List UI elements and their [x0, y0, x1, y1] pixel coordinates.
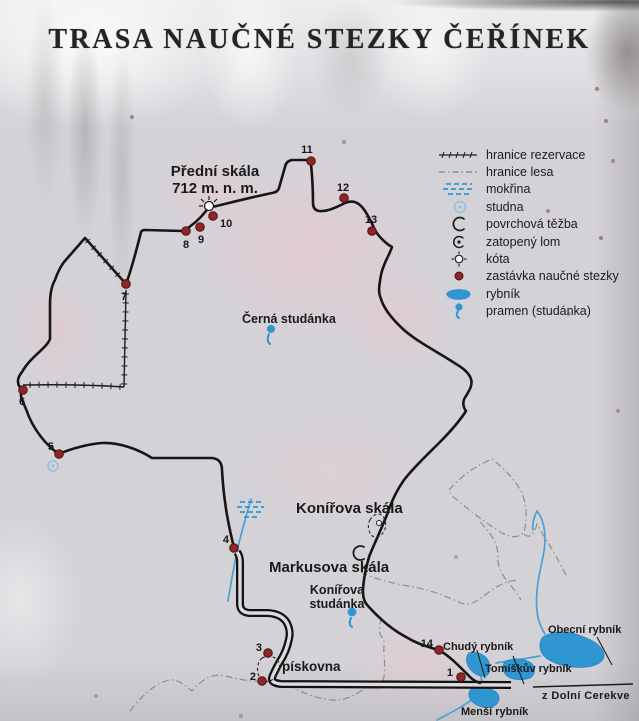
trail-stop-11-label: 11 [301, 144, 313, 156]
forest-boundary-icon [438, 165, 486, 179]
surface-mining-symbol [353, 546, 364, 560]
legend-row-forest-boundary: hranice lesa [438, 163, 619, 180]
trail-stop-11: 11 [301, 144, 315, 165]
trail-stop-3: 3 [256, 642, 272, 657]
wetland-icon [438, 181, 486, 197]
label-konirova-skala: Konířova skála [296, 500, 403, 517]
legend-label-trail-stop: zastávka naučné stezky [486, 269, 619, 283]
trail-stop-8: 8 [182, 227, 191, 251]
label-predni-skala: Přední skála 712 m. n. m. [160, 163, 270, 197]
legend-label-elevation-point: kóta [486, 252, 510, 266]
label-markusova-skala: Markusova skála [269, 559, 389, 576]
pond-icon [438, 286, 486, 302]
reservation-boundary-icon [438, 148, 486, 162]
trail-stop-5-label: 5 [48, 441, 54, 453]
trail-stop-1-label: 1 [447, 667, 453, 679]
pond-mensi [469, 687, 499, 707]
trail-stop-4-label: 4 [223, 534, 230, 546]
wetland-symbol [237, 502, 264, 517]
legend-label-wetland: mokřina [486, 182, 530, 196]
legend-row-trail-stop: zastávka naučné stezky [438, 268, 619, 285]
legend-row-elevation-point: kóta [438, 250, 619, 267]
legend-label-spring: pramen (studánka) [486, 304, 591, 318]
trail-map-sign: TRASA NAUČNÉ STEZKY ČEŘÍNEK [0, 0, 639, 721]
legend-label-flooded-quarry: zatopený lom [486, 235, 560, 249]
legend-row-flooded-quarry: zatopený lom [438, 233, 619, 250]
trail-stop-7: 7 [121, 280, 130, 303]
trail-map-graphic: 1 2 3 4 5 6 7 8 9 10 11 12 13 14 [0, 0, 639, 721]
trail-stop-8-label: 8 [183, 239, 189, 251]
trail-stop-7-label: 7 [121, 291, 127, 303]
well-symbol [48, 461, 58, 471]
label-tomiskuv-rybnik: Tomíškův rybník [485, 663, 572, 675]
trail-stop-14: 14 [421, 638, 444, 654]
label-cerna-studanka: Černá studánka [242, 312, 336, 326]
legend-row-reservation-boundary: hranice rezervace [438, 146, 619, 163]
trail-stop-12: 12 [337, 182, 349, 202]
legend-row-wetland: mokřina [438, 181, 619, 198]
trail-stop-10-label: 10 [220, 218, 232, 230]
trail-stop-13: 13 [365, 214, 377, 235]
flooded-quarry-icon [438, 234, 486, 250]
trail-stop-6: 6 [19, 386, 28, 408]
trail-stop-6-label: 6 [19, 396, 25, 408]
trail-stop-9-label: 9 [198, 234, 204, 246]
trail-stop-12-label: 12 [337, 182, 349, 194]
legend-row-well: studna [438, 198, 619, 215]
spring-symbol [267, 325, 356, 627]
legend-row-surface-mining: povrchová těžba [438, 216, 619, 233]
label-chudy-rybnik: Chudý rybník [443, 641, 513, 653]
legend: hranice rezervace hranice lesa mokřina s… [438, 146, 619, 320]
elevation-point-symbol [199, 196, 219, 211]
trail-stop-icon [438, 269, 486, 283]
legend-label-reservation-boundary: hranice rezervace [486, 148, 585, 162]
trail-stop-5: 5 [48, 441, 63, 458]
label-konirova-studanka-line2: studánka [307, 597, 367, 611]
label-konirova-studanka: Konířova studánka [307, 583, 367, 611]
label-z-dolni-cerekve: z Dolní Cerekve [542, 690, 630, 702]
trail-stop-13-label: 13 [365, 214, 377, 226]
label-predni-skala-elevation: 712 m. n. m. [160, 180, 270, 197]
legend-label-surface-mining: povrchová těžba [486, 217, 578, 231]
legend-label-well: studna [486, 200, 524, 214]
label-obecni-rybnik: Obecní rybník [548, 624, 621, 636]
legend-row-pond: rybník [438, 285, 619, 302]
label-predni-skala-name: Přední skála [160, 163, 270, 180]
elevation-point-icon [438, 251, 486, 267]
well-icon [438, 199, 486, 215]
legend-row-spring: pramen (studánka) [438, 303, 619, 320]
trail-stop-3-label: 3 [256, 642, 262, 654]
surface-mining-icon [438, 216, 486, 232]
label-piskovna: pískovna [282, 659, 341, 674]
trail-stop-2-label: 2 [250, 671, 256, 683]
label-mensi-rybnik: Menší rybník [461, 706, 528, 718]
trail-path [18, 160, 480, 683]
spring-icon [438, 302, 486, 320]
trail-stop-9: 9 [196, 223, 205, 246]
trail-stop-14-label: 14 [421, 638, 434, 650]
legend-label-pond: rybník [486, 287, 520, 301]
trail-stop-10: 10 [209, 212, 233, 230]
reservation-boundary-path [23, 238, 129, 390]
label-konirova-studanka-line1: Konířova [307, 583, 367, 597]
legend-label-forest-boundary: hranice lesa [486, 165, 553, 179]
road-to-dolni-cerekve [533, 684, 633, 687]
